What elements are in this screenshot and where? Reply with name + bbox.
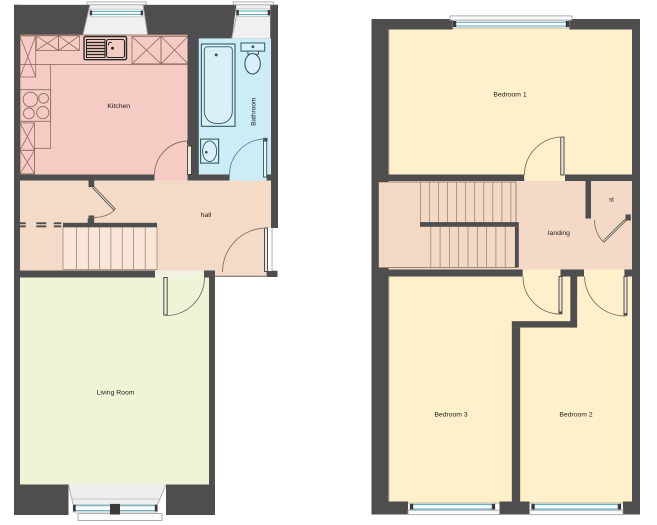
- svg-text:Bedroom 1: Bedroom 1: [493, 91, 526, 98]
- svg-text:Bathroom: Bathroom: [251, 98, 258, 126]
- svg-text:st: st: [609, 196, 614, 203]
- svg-text:Kitchen: Kitchen: [107, 103, 130, 110]
- svg-text:hall: hall: [201, 212, 212, 219]
- svg-text:Living Room: Living Room: [97, 389, 135, 396]
- svg-text:landing: landing: [548, 230, 570, 237]
- svg-text:Bedroom 2: Bedroom 2: [559, 411, 592, 418]
- svg-text:Bedroom 3: Bedroom 3: [434, 411, 467, 418]
